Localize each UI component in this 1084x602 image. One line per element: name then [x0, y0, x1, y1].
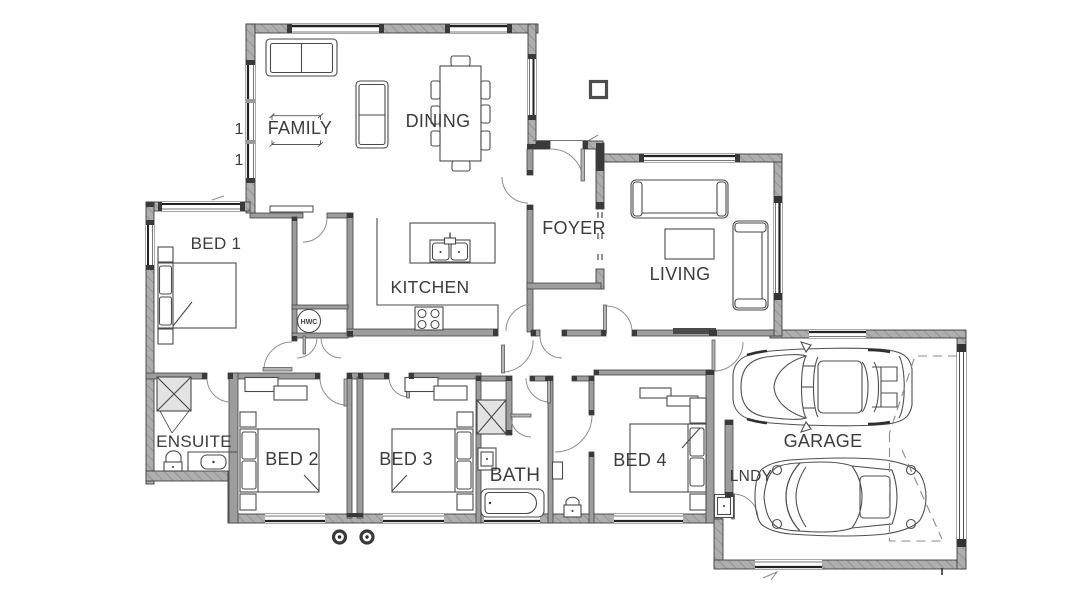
svg-text:BED 4: BED 4: [613, 450, 667, 470]
svg-text:DINING: DINING: [406, 111, 471, 131]
svg-text:LNDY: LNDY: [730, 468, 773, 485]
svg-text:GARAGE: GARAGE: [784, 431, 863, 451]
svg-text:HWC: HWC: [301, 319, 318, 326]
svg-text:BED 1: BED 1: [191, 234, 242, 253]
svg-text:BED 3: BED 3: [379, 449, 433, 469]
svg-text:BATH: BATH: [490, 465, 540, 486]
svg-text:BED 2: BED 2: [265, 449, 319, 469]
svg-text:1: 1: [235, 152, 244, 169]
svg-text:ENSUITE: ENSUITE: [156, 432, 232, 451]
svg-text:FAMILY: FAMILY: [268, 118, 332, 138]
svg-text:LIVING: LIVING: [650, 264, 711, 284]
svg-text:FOYER: FOYER: [542, 218, 606, 238]
svg-text:KITCHEN: KITCHEN: [391, 277, 470, 297]
svg-text:1: 1: [235, 121, 244, 138]
